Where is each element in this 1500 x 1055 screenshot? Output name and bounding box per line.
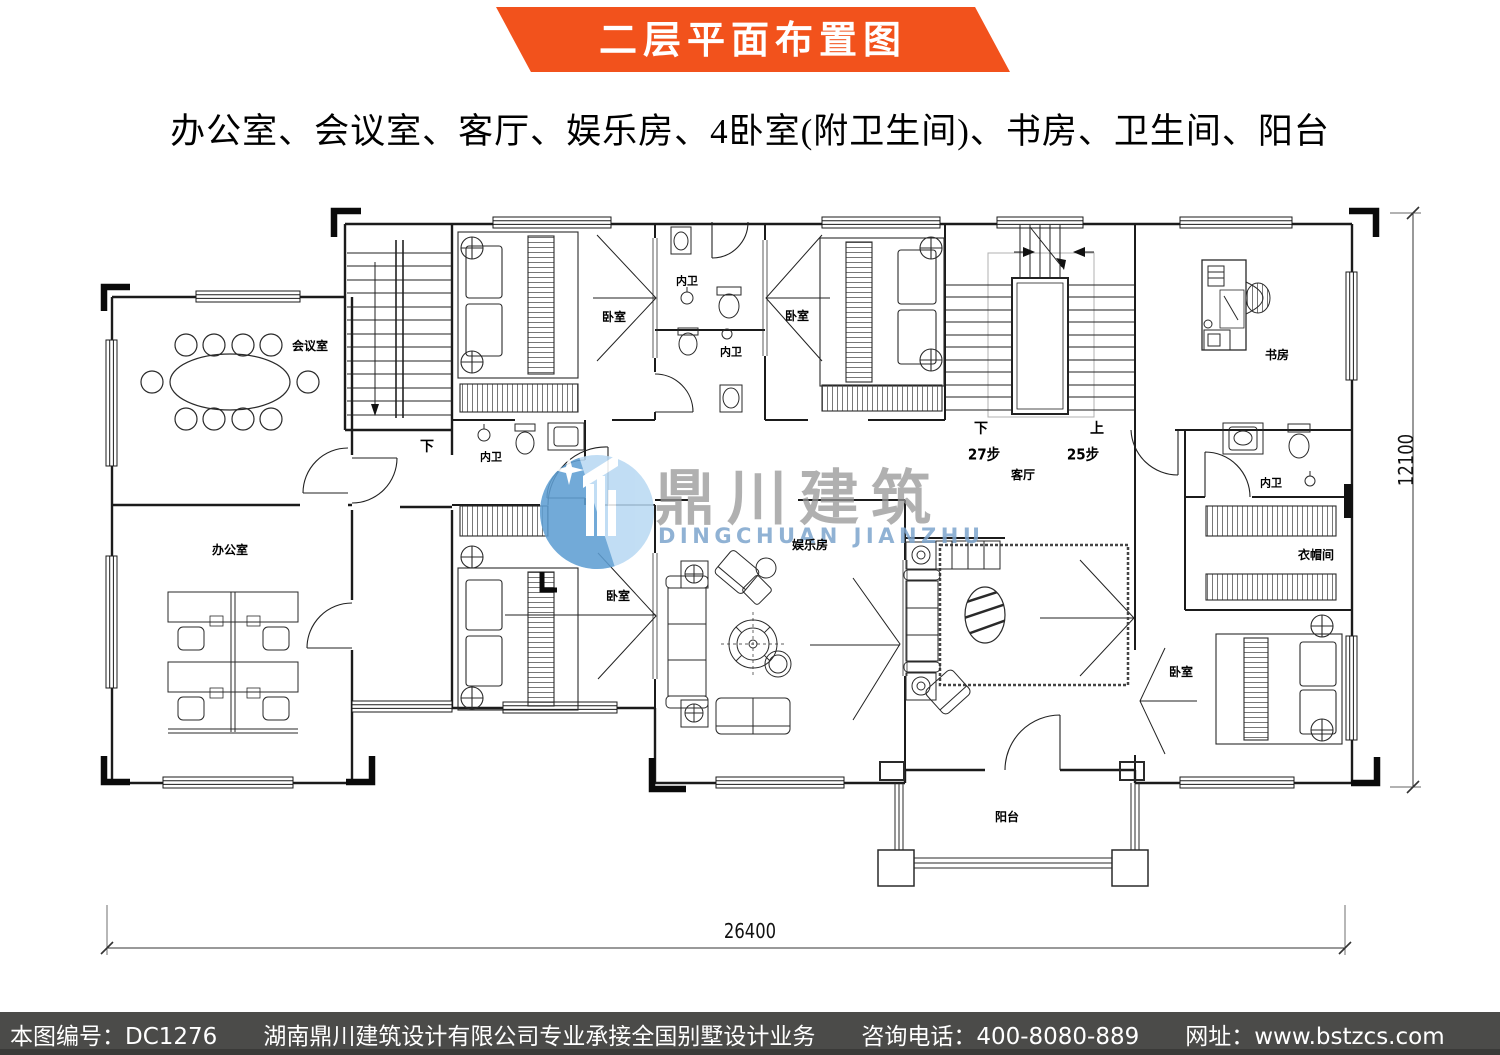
footer-company: 湖南鼎川建筑设计有限公司专业承接全国别墅设计业务 bbox=[263, 1017, 815, 1051]
room-label-bedroom-tl: 卧室 bbox=[602, 311, 626, 323]
stair-label-down-left: 下 bbox=[420, 440, 434, 454]
entertainment-furniture bbox=[666, 549, 791, 734]
room-label-bedroom-br: 卧室 bbox=[1169, 666, 1193, 678]
footer-phone: 咨询电话：400-8080-889 bbox=[861, 1017, 1139, 1051]
room-list-subtitle: 办公室、会议室、客厅、娱乐房、4卧室(附卫生间)、书房、卫生间、阳台 bbox=[0, 103, 1500, 154]
footer-bar: 本图编号：DC1276 湖南鼎川建筑设计有限公司专业承接全国别墅设计业务 咨询电… bbox=[0, 1012, 1500, 1055]
floor-plan-page: 二层平面布置图 办公室、会议室、客厅、娱乐房、4卧室(附卫生间)、书房、卫生间、… bbox=[0, 0, 1500, 1055]
room-label-entertainment: 娱乐房 bbox=[792, 539, 828, 551]
study-desk bbox=[1202, 260, 1270, 350]
balcony bbox=[878, 762, 1148, 886]
stair-label-down: 下 bbox=[974, 422, 988, 436]
room-label-bedroom-tr: 卧室 bbox=[785, 310, 809, 322]
footer-website: 网址：www.bstzcs.com bbox=[1185, 1017, 1444, 1051]
footer-drawing-number: 本图编号：DC1276 bbox=[10, 1017, 217, 1051]
room-label-balcony: 阳台 bbox=[995, 811, 1019, 823]
room-label-cloakroom: 衣帽间 bbox=[1298, 549, 1334, 561]
dimension-width: 26400 bbox=[724, 919, 776, 943]
stair-label-up-steps: 25步 bbox=[1067, 448, 1099, 463]
stair-label-up: 上 bbox=[1090, 422, 1104, 436]
room-label-bedroom-bl: 卧室 bbox=[606, 590, 630, 602]
living-room-furniture bbox=[904, 541, 1128, 716]
stair-label-down-steps: 27步 bbox=[968, 448, 1000, 463]
bed-top-left bbox=[458, 232, 578, 412]
room-label-bath-1: 内卫 bbox=[676, 276, 698, 287]
left-staircase bbox=[347, 240, 452, 418]
room-label-bath-right: 内卫 bbox=[1260, 478, 1282, 489]
central-staircase bbox=[946, 225, 1134, 417]
dimension-height: 12100 bbox=[1394, 434, 1418, 486]
room-label-study: 书房 bbox=[1265, 349, 1289, 361]
room-label-living-room: 客厅 bbox=[1011, 469, 1035, 481]
office-desks bbox=[168, 592, 298, 733]
bed-bottom-right bbox=[1216, 615, 1342, 744]
room-label-bath-2: 内卫 bbox=[720, 347, 742, 358]
watermark-logo bbox=[525, 454, 654, 584]
page-title-banner: 二层平面布置图 bbox=[496, 7, 1010, 72]
room-label-meeting-room: 会议室 bbox=[292, 340, 328, 352]
bed-top-right bbox=[820, 237, 944, 411]
room-label-office: 办公室 bbox=[212, 544, 248, 556]
room-label-bath-3: 内卫 bbox=[480, 452, 502, 463]
